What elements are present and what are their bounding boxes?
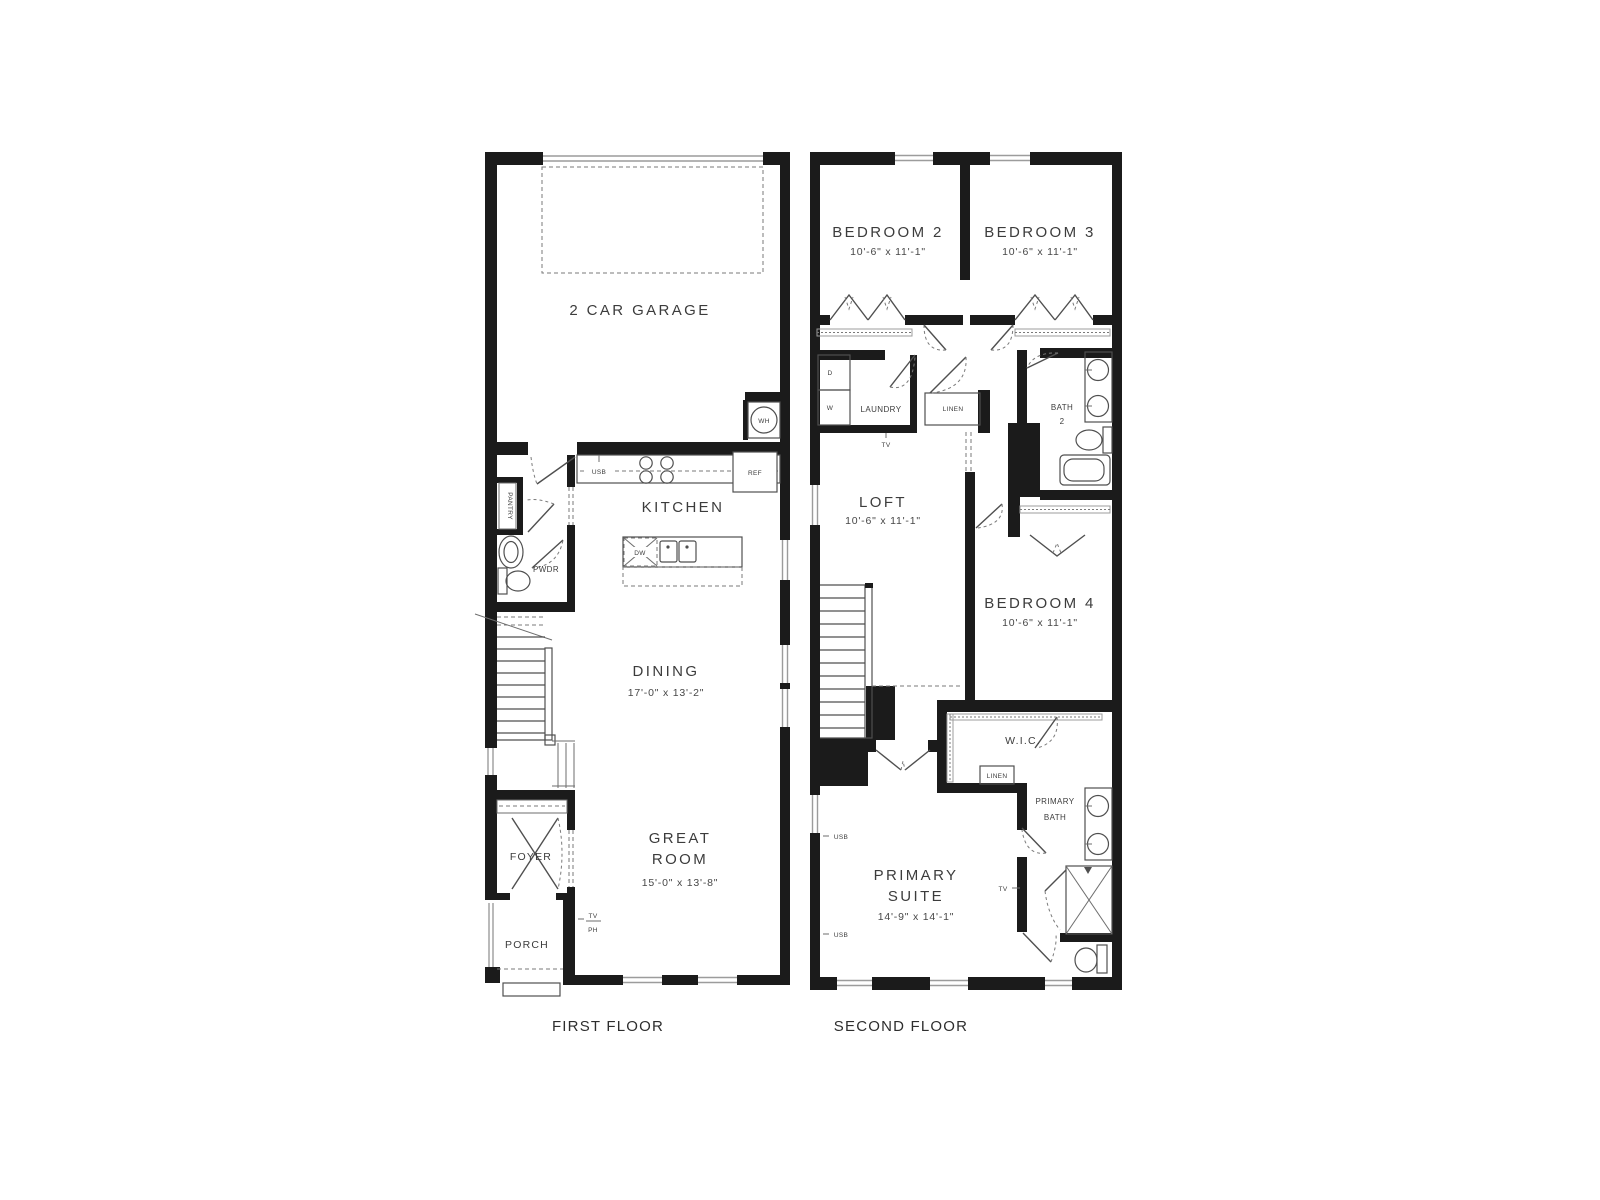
porch-label: PORCH <box>505 939 549 951</box>
pantry-label: PANTRY <box>506 492 513 520</box>
wic-linen-label: LINEN <box>987 773 1008 780</box>
phone-outlet-label: PH <box>588 927 598 934</box>
loft-opening-dashed <box>966 432 971 472</box>
suite-usb-outlets <box>823 836 829 934</box>
second-floor-plan: D W LAUNDRY TV LINEN BATH 2 <box>795 140 1135 1020</box>
kitchen-label: KITCHEN <box>642 499 725 516</box>
great-room-label-line2: ROOM <box>652 851 708 868</box>
bath2-fixtures <box>1060 352 1112 485</box>
window-left-stairs <box>485 748 497 775</box>
usb-lower-label: USB <box>834 932 848 939</box>
wic-shelving <box>947 714 1102 782</box>
foyer-opening-dashed <box>567 830 575 887</box>
great-room-dims: 15'-0" x 13'-8" <box>642 877 719 889</box>
dining-label: DINING <box>633 663 700 680</box>
bedroom2-closet <box>817 295 912 336</box>
garage-door-opening <box>543 152 763 165</box>
bedroom3-label: BEDROOM 3 <box>984 224 1096 241</box>
usb-upper-label: USB <box>834 834 848 841</box>
stove-icon <box>640 457 673 483</box>
bedroom2-door <box>924 325 946 350</box>
great-room-label-line1: GREAT <box>649 830 712 847</box>
refrigerator-label: REF <box>748 470 762 477</box>
washer-label: W <box>827 405 834 412</box>
dishwasher-label: DW <box>634 550 646 557</box>
hall-linen-closet <box>925 357 980 425</box>
wic-label: W.I.C. <box>1005 735 1041 747</box>
suite-tv-label: TV <box>999 886 1008 893</box>
second-floor-walls <box>810 152 1122 990</box>
suite-double-door <box>876 750 930 770</box>
first-floor-plan: WH USB REF DW PANTRY <box>470 140 800 1020</box>
bedroom3-dims: 10'-6" x 11'-1" <box>1002 246 1078 258</box>
floor-plan-canvas: WH USB REF DW PANTRY <box>0 0 1600 1200</box>
bedroom4-door <box>976 504 1002 528</box>
kitchen-island <box>623 537 742 586</box>
water-heater-label: WH <box>758 418 769 425</box>
bedroom4-dims: 10'-6" x 11'-1" <box>1002 617 1078 629</box>
bedroom3-door <box>991 325 1013 350</box>
first-floor-caption: FIRST FLOOR <box>498 1018 718 1035</box>
bath2-label-line2: 2 <box>1060 417 1065 426</box>
hall-cased-opening <box>567 487 575 525</box>
garage-label: 2 CAR GARAGE <box>569 302 710 319</box>
second-floor-caption: SECOND FLOOR <box>791 1018 1011 1035</box>
bedroom4-closet <box>1020 506 1110 556</box>
primary-suite-label-line1: PRIMARY <box>874 867 959 884</box>
bath2-label-line1: BATH <box>1051 403 1073 412</box>
bedroom2-dims: 10'-6" x 11'-1" <box>850 246 926 258</box>
powder-room-label: PWDR <box>533 565 559 574</box>
bedroom4-label: BEDROOM 4 <box>984 595 1096 612</box>
foyer-label: FOYER <box>510 851 552 863</box>
laundry-tv-label: TV <box>882 442 891 449</box>
primary-bath-fixtures <box>1022 788 1112 973</box>
usb-outlet-label: USB <box>592 469 606 476</box>
loft-label: LOFT <box>859 494 907 511</box>
primary-suite-label-line2: SUITE <box>888 888 944 905</box>
loft-dims: 10'-6" x 11'-1" <box>845 515 921 527</box>
primary-bath-label-line1: PRIMARY <box>1035 797 1074 806</box>
foyer-closet <box>497 800 567 813</box>
garage-parking-outline <box>542 167 763 273</box>
primary-suite-dims: 14'-9" x 14'-1" <box>878 911 955 923</box>
primary-bath-label-line2: BATH <box>1044 813 1066 822</box>
dining-dims: 17'-0" x 13'-2" <box>628 687 705 699</box>
hall-linen-label: LINEN <box>943 406 964 413</box>
tv-outlet-label: TV <box>589 913 598 920</box>
laundry-label: LAUNDRY <box>861 405 902 414</box>
dryer-label: D <box>828 370 833 377</box>
bedroom2-label: BEDROOM 2 <box>832 224 944 241</box>
